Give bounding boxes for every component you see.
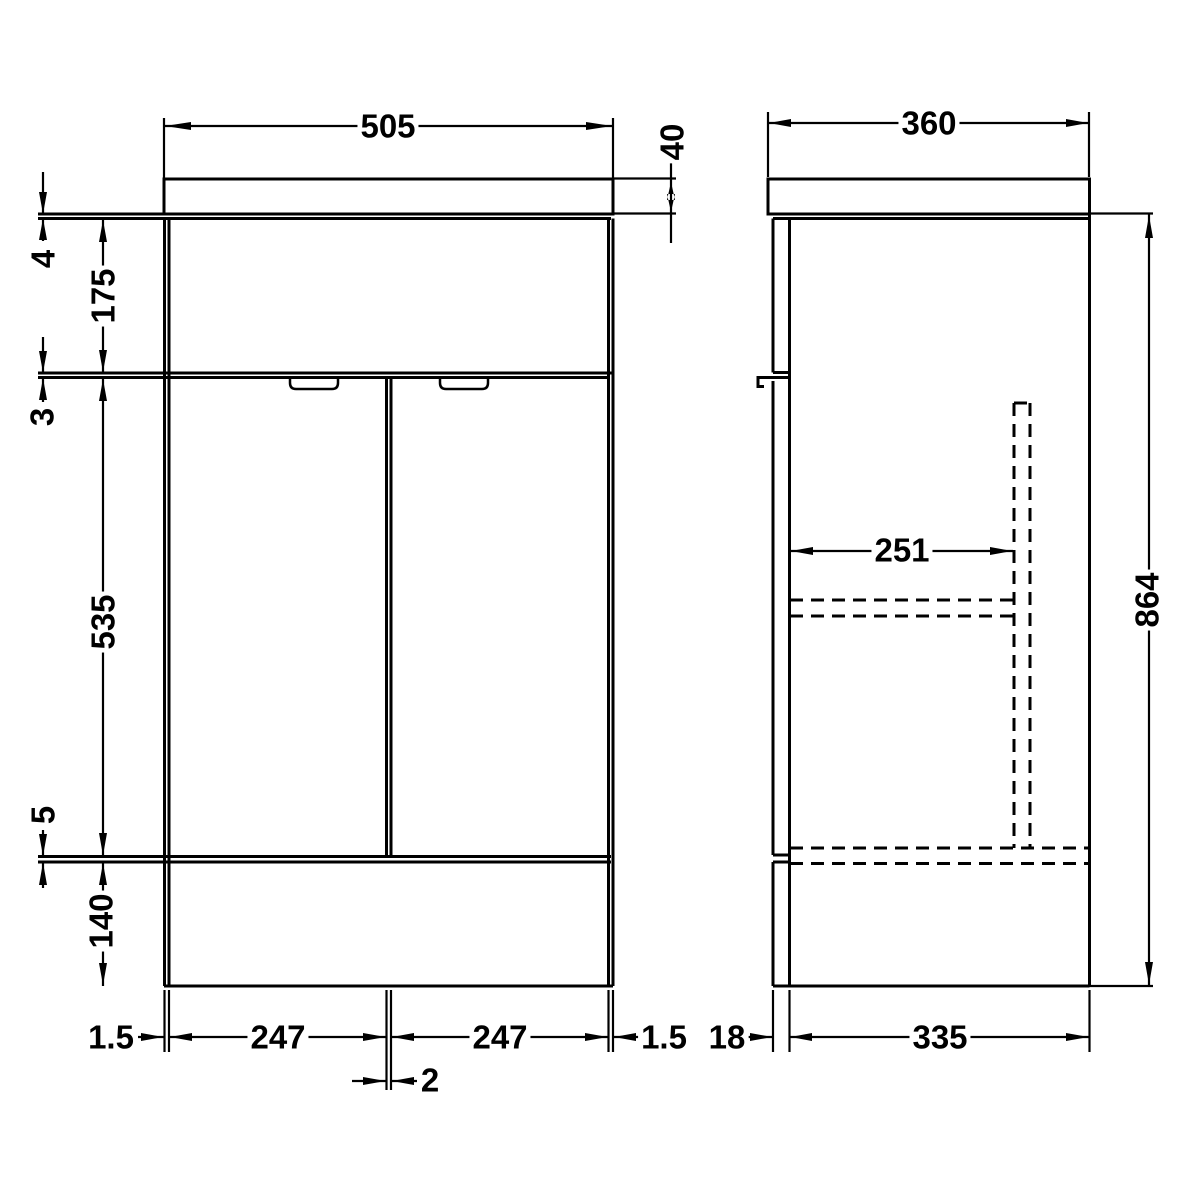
side-worktop bbox=[768, 179, 1090, 214]
front-view bbox=[38, 179, 613, 986]
front-door-divider bbox=[387, 378, 392, 857]
dim-label-worktop-gap: 4 bbox=[26, 247, 61, 271]
dim-label-carcass-depth: 335 bbox=[909, 1020, 970, 1055]
dim-label-plinth-height: 140 bbox=[84, 890, 119, 951]
dim-label-right-door-width: 247 bbox=[469, 1020, 530, 1055]
dim-label-worktop-thickness: 40 bbox=[655, 121, 690, 164]
dim-label-door-height: 535 bbox=[86, 591, 121, 652]
dim-label-left-reveal: 1.5 bbox=[85, 1020, 137, 1055]
dim-label-worktop-depth: 360 bbox=[898, 106, 959, 141]
front-carcass-outline bbox=[38, 214, 613, 986]
side-hidden-shelf bbox=[790, 600, 1013, 616]
side-view bbox=[758, 179, 1090, 986]
right-door-handle bbox=[440, 379, 488, 390]
dim-label-left-door-width: 247 bbox=[247, 1020, 308, 1055]
technical-drawing-page: 505 40 4 175 3 535 5 140 1.5 247 247 1.5… bbox=[0, 0, 1200, 1200]
dim-label-overall-height: 864 bbox=[1130, 569, 1165, 630]
dim-label-worktop-width: 505 bbox=[357, 109, 418, 144]
side-hidden-back-panel bbox=[1014, 403, 1030, 848]
front-worktop bbox=[164, 179, 613, 214]
side-hidden-bottom-panel bbox=[790, 848, 1089, 864]
dim-label-right-reveal: 1.5 bbox=[638, 1020, 690, 1055]
dimension-arrowheads bbox=[39, 119, 1153, 1085]
dim-label-door-thickness: 18 bbox=[706, 1020, 749, 1055]
dim-label-door-gap: 2 bbox=[418, 1063, 442, 1098]
front-extension-lines bbox=[164, 118, 676, 1090]
dim-label-door-plinth-gap: 5 bbox=[26, 803, 61, 827]
dim-label-internal-depth: 251 bbox=[871, 533, 932, 568]
vanity-unit-drawing bbox=[0, 0, 1200, 1200]
side-extension-lines bbox=[768, 112, 1153, 1052]
dim-label-upper-panel-height: 175 bbox=[86, 265, 121, 326]
left-door-handle bbox=[290, 379, 338, 390]
dim-label-panel-door-gap: 3 bbox=[25, 405, 60, 429]
front-dimension-lines bbox=[43, 122, 671, 1081]
